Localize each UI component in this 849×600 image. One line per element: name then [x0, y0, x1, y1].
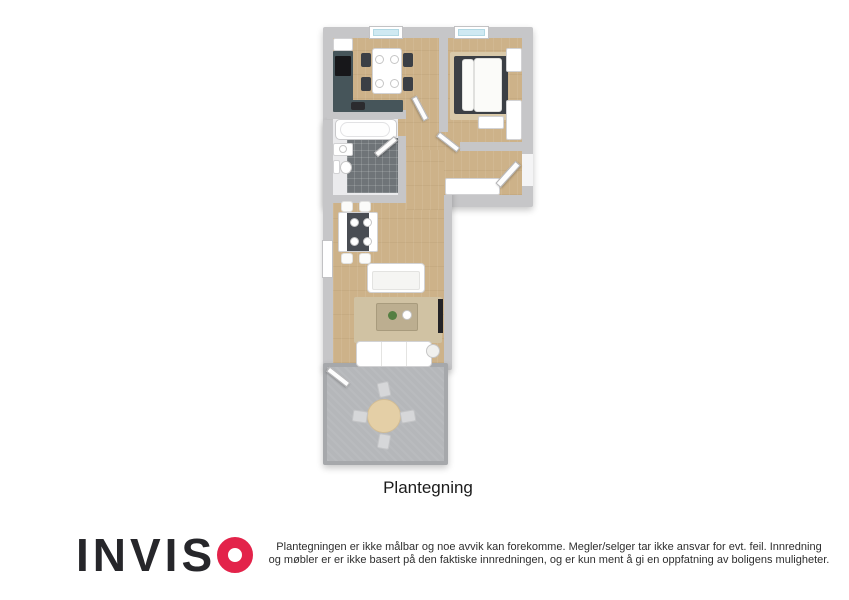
inviso-logo: INVIS [76, 532, 253, 578]
plate [390, 79, 399, 88]
living-chair [341, 253, 353, 264]
kitchen-chair [403, 77, 413, 91]
kitchen-sink [351, 102, 365, 110]
kitchen-window [369, 26, 403, 39]
sofa-three-seat [356, 341, 432, 367]
bedroom-wardrobe [506, 100, 522, 140]
plan-caption: Plantegning [323, 478, 533, 498]
kitchen-chair [403, 53, 413, 67]
disclaimer-text: Plantegningen er ikke målbar og noe avvi… [262, 541, 836, 567]
hall-closet [445, 178, 500, 195]
terrace-chair [377, 433, 391, 450]
bed-pillows [462, 59, 474, 111]
floor-plan [0, 0, 849, 600]
terrace-chair [400, 409, 417, 423]
floor-hall-living-connector [406, 150, 444, 210]
inviso-logo-o [217, 537, 253, 573]
kitchen-chair [361, 53, 371, 67]
bedroom-bench [478, 116, 504, 129]
terrace-table [367, 399, 401, 433]
entry-door-opening [522, 154, 533, 186]
plate [390, 55, 399, 64]
living-room-window [322, 240, 333, 278]
living-chair [341, 201, 353, 212]
kitchen-window-glass [373, 29, 399, 36]
potted-plant [388, 311, 397, 320]
plate [363, 218, 372, 227]
plate [375, 55, 384, 64]
kitchen-cooktop [335, 56, 351, 76]
living-chair [359, 201, 371, 212]
plate [363, 237, 372, 246]
wall-bedroom-bottom [460, 142, 522, 151]
disclaimer-line-2: og møbler er er ikke basert på den fakti… [262, 554, 836, 567]
decor-tray [402, 310, 412, 320]
plate [375, 79, 384, 88]
wall-bathroom-right [398, 136, 406, 203]
pouf [426, 344, 440, 358]
kitchen-counter-bottom [333, 100, 403, 112]
bed-duvet [474, 58, 502, 112]
page: Plantegning INVIS Plantegningen er ikke … [0, 0, 849, 600]
bedroom-wardrobe [506, 48, 522, 72]
plate [350, 237, 359, 246]
sink-basin [339, 145, 347, 153]
bathtub-basin [340, 122, 390, 137]
bedroom-window-glass [458, 29, 485, 36]
bedroom-window [454, 26, 489, 39]
sofa-loveseat-seat [372, 271, 420, 290]
tv [438, 299, 443, 333]
toilet-tank [333, 160, 340, 174]
coffee-table [376, 303, 418, 331]
kitchen-chair [361, 77, 371, 91]
plate [350, 218, 359, 227]
inviso-logo-letters: INVIS [76, 532, 216, 578]
terrace-chair [352, 410, 369, 424]
kitchen-corner-cabinet [333, 38, 353, 51]
toilet-bowl [340, 161, 352, 174]
disclaimer-line-1: Plantegningen er ikke målbar og noe avvi… [262, 541, 836, 554]
wall-bedroom-left [439, 31, 448, 132]
